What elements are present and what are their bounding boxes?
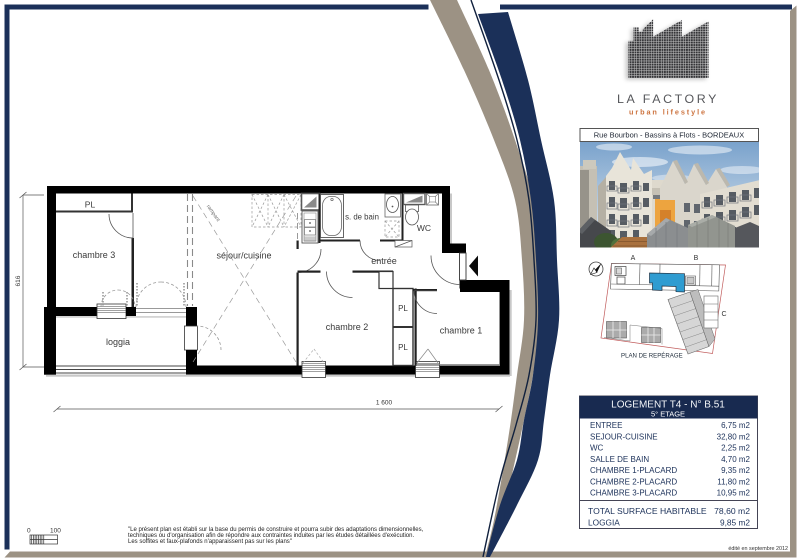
svg-text:CHAMBRE 1-PLACARD: CHAMBRE 1-PLACARD bbox=[590, 466, 677, 475]
svg-text:entrée: entrée bbox=[371, 256, 397, 266]
svg-text:TOTAL SURFACE HABITABLE: TOTAL SURFACE HABITABLE bbox=[588, 506, 707, 516]
svg-text:5° ETAGE: 5° ETAGE bbox=[651, 410, 685, 419]
svg-text:11,80 m2: 11,80 m2 bbox=[717, 477, 750, 486]
svg-text:PL: PL bbox=[398, 343, 408, 352]
svg-text:PL: PL bbox=[398, 304, 408, 313]
svg-text:78,60 m2: 78,60 m2 bbox=[714, 506, 750, 516]
svg-text:1 600: 1 600 bbox=[376, 400, 393, 407]
svg-text:chambre 3: chambre 3 bbox=[73, 250, 116, 260]
svg-text:0: 0 bbox=[27, 528, 31, 535]
svg-text:100: 100 bbox=[50, 528, 61, 535]
svg-text:édité en septembre 2012: édité en septembre 2012 bbox=[728, 546, 788, 552]
svg-text:616: 616 bbox=[15, 275, 22, 286]
svg-text:CHAMBRE 2-PLACARD: CHAMBRE 2-PLACARD bbox=[590, 477, 677, 486]
svg-text:PL: PL bbox=[85, 200, 96, 210]
svg-text:Rue Bourbon - Bassins à Flots: Rue Bourbon - Bassins à Flots - BORDEAUX bbox=[594, 131, 744, 140]
svg-text:SEJOUR-CUISINE: SEJOUR-CUISINE bbox=[590, 432, 658, 441]
svg-text:9,85 m2: 9,85 m2 bbox=[720, 518, 750, 528]
svg-text:A: A bbox=[631, 255, 636, 262]
svg-text:WC: WC bbox=[590, 444, 604, 453]
svg-text:10,95 m2: 10,95 m2 bbox=[717, 489, 751, 498]
svg-text:séjour/cuisine: séjour/cuisine bbox=[216, 251, 271, 261]
svg-text:ENTREE: ENTREE bbox=[590, 421, 622, 430]
svg-text:chambre 1: chambre 1 bbox=[440, 326, 483, 336]
svg-text:loggia: loggia bbox=[106, 337, 130, 347]
svg-text:LA FACTORY: LA FACTORY bbox=[617, 92, 719, 106]
svg-text:LOGGIA: LOGGIA bbox=[588, 518, 620, 528]
svg-text:C: C bbox=[721, 311, 726, 318]
svg-text:urban lifestyle: urban lifestyle bbox=[629, 108, 707, 117]
svg-text:B: B bbox=[694, 255, 699, 262]
svg-text:32,80 m2: 32,80 m2 bbox=[717, 432, 751, 441]
svg-text:Les soffites et faux-plafonds: Les soffites et faux-plafonds n'apparais… bbox=[128, 539, 292, 545]
svg-text:9,35 m2: 9,35 m2 bbox=[721, 466, 750, 475]
svg-text:4,70 m2: 4,70 m2 bbox=[721, 455, 750, 464]
svg-text:s. de bain: s. de bain bbox=[345, 213, 379, 222]
svg-text:WC: WC bbox=[417, 223, 431, 233]
svg-text:chambre 2: chambre 2 bbox=[326, 322, 369, 332]
svg-text:PLAN DE REPÉRAGE: PLAN DE REPÉRAGE bbox=[621, 353, 683, 360]
svg-text:6,75 m2: 6,75 m2 bbox=[721, 421, 750, 430]
svg-text:SALLE DE BAIN: SALLE DE BAIN bbox=[590, 455, 649, 464]
svg-text:2,25 m2: 2,25 m2 bbox=[721, 444, 750, 453]
svg-text:CHAMBRE 3-PLACARD: CHAMBRE 3-PLACARD bbox=[590, 489, 677, 498]
